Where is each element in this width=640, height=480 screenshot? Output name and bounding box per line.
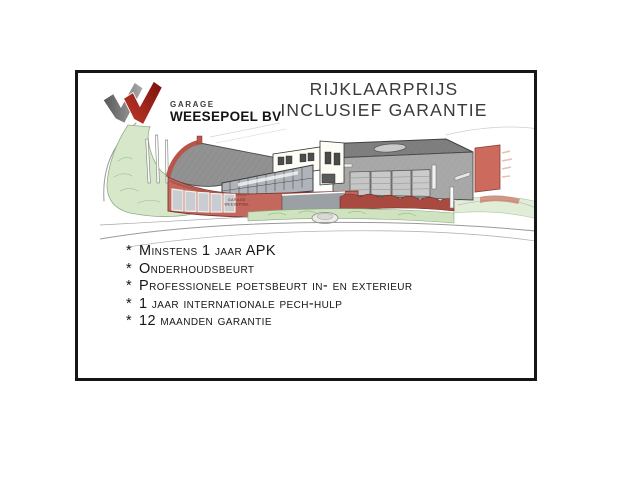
white-post (450, 187, 454, 208)
front-lawn (248, 209, 454, 223)
headline-line2: INCLUSIEF GARANTIE (264, 100, 504, 121)
downpipe (432, 165, 436, 189)
advertisement-slide: GARAGE WEESEPOEL BV RIJKLAARPRIJS INCLUS… (0, 0, 640, 480)
tower-opening (322, 174, 335, 183)
headline-line1: RIJKLAARPRIJS (264, 79, 504, 100)
garage-doors (350, 170, 430, 197)
bullet-asterisk: * (126, 261, 139, 279)
building-sign-line2: WEESEPOEL (225, 203, 250, 207)
feature-item: *Onderhoudsbeurt (126, 261, 536, 279)
company-logo: GARAGE WEESEPOEL BV (102, 77, 281, 127)
parapet-fin (197, 136, 202, 144)
picture-frame: GARAGE WEESEPOEL BV RIJKLAARPRIJS INCLUS… (75, 70, 537, 381)
feature-item: *12 maanden garantie (126, 313, 536, 331)
feature-item: *Professionele poetsbeurt in- en exterie… (126, 278, 536, 296)
building-sketch: GARAGE WEESEPOEL (98, 121, 537, 255)
bullet-asterisk: * (126, 278, 139, 296)
feature-item: *1 jaar internationale pech-hulp (126, 296, 536, 314)
feature-item: *Minstens 1 jaar APK (126, 243, 536, 261)
red-end-wall (475, 145, 520, 204)
bullet-asterisk: * (126, 313, 139, 331)
bullet-asterisk: * (126, 296, 139, 314)
building-sign-line1: GARAGE (228, 198, 246, 202)
headline: RIJKLAARPRIJS INCLUSIEF GARANTIE (264, 79, 504, 121)
bullet-asterisk: * (126, 243, 139, 261)
logo-check-red (124, 81, 163, 124)
logo-w-mark (102, 77, 164, 127)
feature-list: *Minstens 1 jaar APK *Onderhoudsbeurt *P… (126, 243, 536, 331)
